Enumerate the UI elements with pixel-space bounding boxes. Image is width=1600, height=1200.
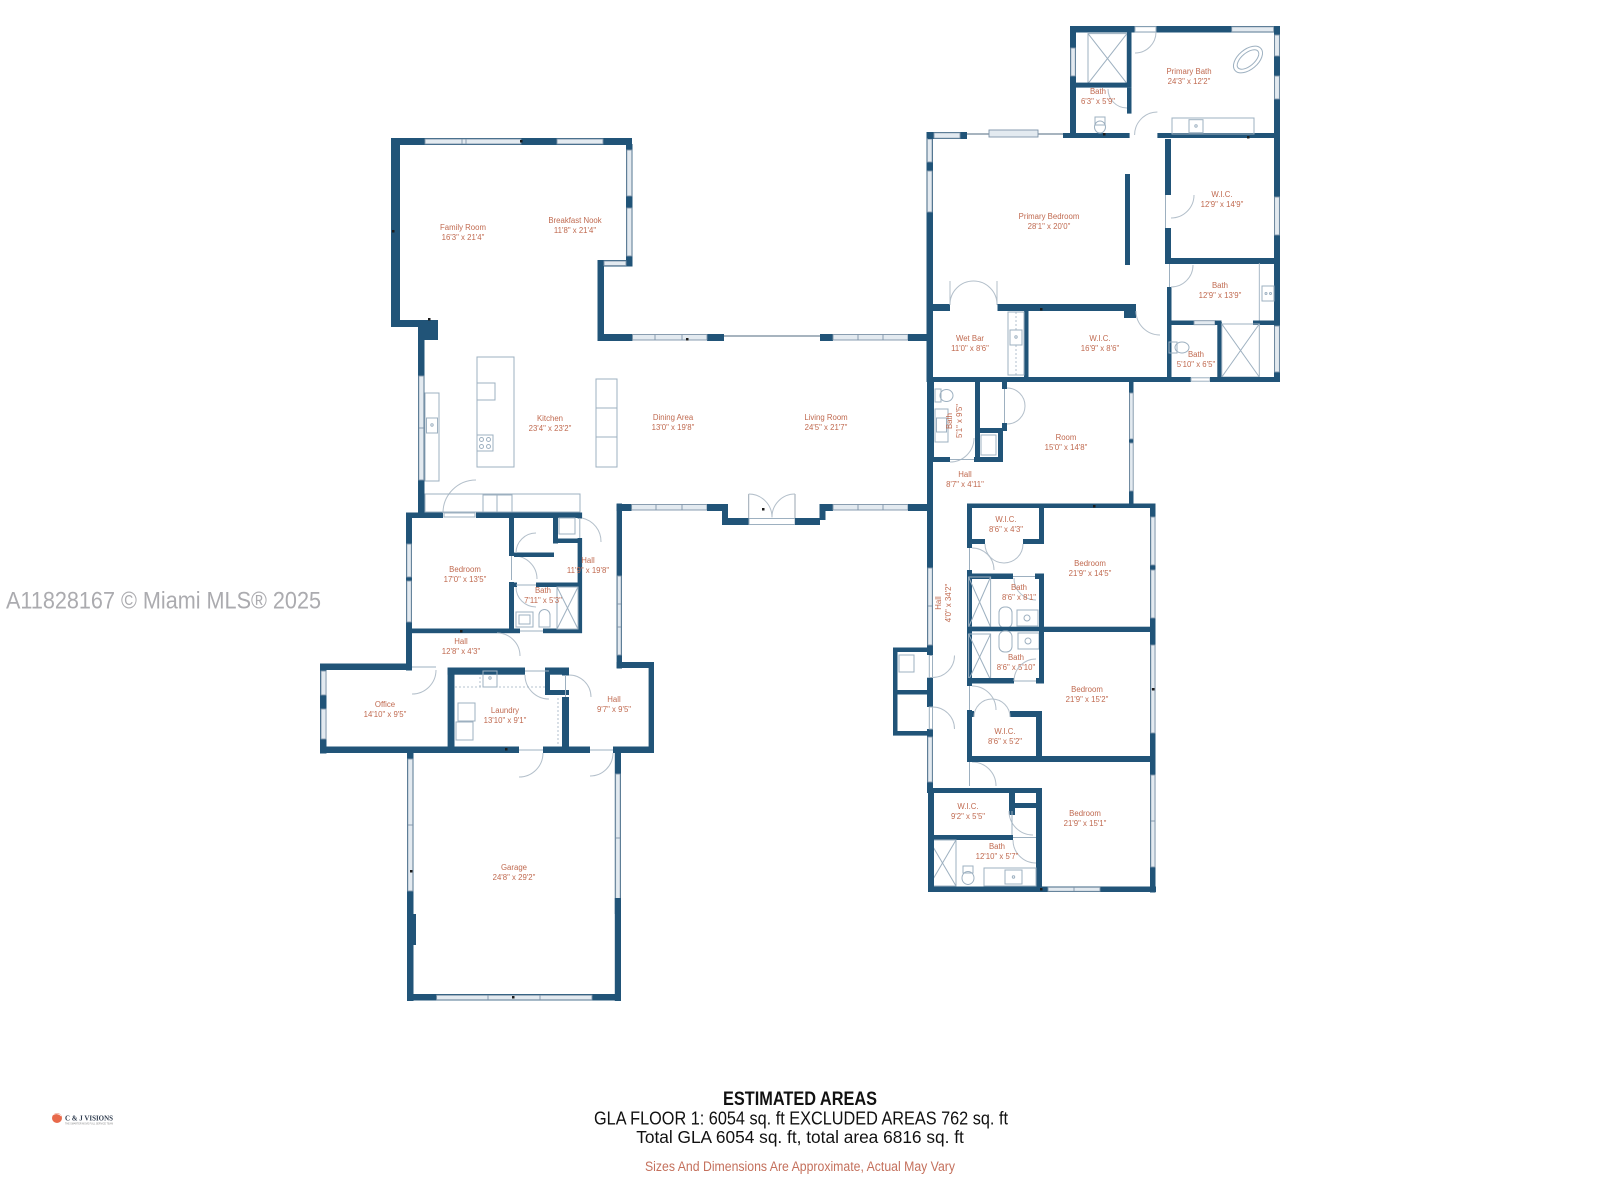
svg-text:21'9" x 15'2": 21'9" x 15'2" [1066,695,1109,704]
svg-text:GLA FLOOR 1: 6054 sq. ft EXCLU: GLA FLOOR 1: 6054 sq. ft EXCLUDED AREAS … [594,1108,1008,1129]
svg-text:Bath: Bath [989,842,1005,851]
svg-text:11'0" x 8'6": 11'0" x 8'6" [951,344,989,353]
svg-text:Bedroom: Bedroom [1074,559,1106,568]
svg-text:21'9" x 14'5": 21'9" x 14'5" [1069,569,1112,578]
svg-text:13'10" x 9'1": 13'10" x 9'1" [484,716,527,725]
svg-text:6'3" x 5'9": 6'3" x 5'9" [1081,97,1115,106]
svg-text:Hall: Hall [607,695,621,704]
svg-text:Dining Area: Dining Area [653,413,694,422]
svg-text:Room: Room [1056,433,1077,442]
svg-text:W.I.C.: W.I.C. [994,727,1015,736]
svg-text:Hall: Hall [454,637,468,646]
svg-text:11'8" x 21'4": 11'8" x 21'4" [554,226,596,235]
svg-text:8'6" x 8'1": 8'6" x 8'1" [1002,593,1036,602]
svg-text:Bath: Bath [535,586,551,595]
svg-text:Breakfast Nook: Breakfast Nook [548,216,601,225]
svg-text:7'11" x 5'3": 7'11" x 5'3" [524,596,562,605]
svg-text:13'0" x 19'8": 13'0" x 19'8" [652,423,695,432]
svg-text:Bath: Bath [1212,281,1228,290]
svg-text:16'3" x 21'4": 16'3" x 21'4" [442,233,485,242]
svg-text:14'10" x 9'5": 14'10" x 9'5" [364,710,407,719]
svg-text:9'2" x 5'5": 9'2" x 5'5" [951,812,985,821]
svg-text:Hall: Hall [581,556,595,565]
svg-text:Bath: Bath [1008,653,1024,662]
svg-text:THE SMARTER MOVE FULL SERVICE: THE SMARTER MOVE FULL SERVICE TEAM [65,1122,114,1126]
svg-text:8'7" x 4'11": 8'7" x 4'11" [946,480,984,489]
svg-text:Family Room: Family Room [440,223,486,232]
svg-text:Hall: Hall [958,470,972,479]
svg-text:Bedroom: Bedroom [449,565,481,574]
svg-text:24'3" x 12'2": 24'3" x 12'2" [1168,77,1211,86]
svg-text:9'7" x 9'5": 9'7" x 9'5" [597,705,631,714]
svg-text:24'8" x 29'2": 24'8" x 29'2" [493,873,536,882]
svg-text:Wet Bar: Wet Bar [956,334,984,343]
svg-text:15'0" x 14'8": 15'0" x 14'8" [1045,443,1088,452]
svg-text:21'9" x 15'1": 21'9" x 15'1" [1064,819,1107,828]
svg-text:12'9" x 13'9": 12'9" x 13'9" [1199,291,1242,300]
svg-text:W.I.C.: W.I.C. [1211,190,1232,199]
svg-text:Bedroom: Bedroom [1071,685,1103,694]
svg-text:Living Room: Living Room [804,413,847,422]
svg-text:W.I.C.: W.I.C. [957,802,978,811]
svg-text:Total GLA 6054 sq. ft, total a: Total GLA 6054 sq. ft, total area 6816 s… [636,1127,964,1147]
svg-text:Hall: Hall [934,596,943,610]
svg-text:24'5" x 21'7": 24'5" x 21'7" [805,423,848,432]
svg-text:Sizes And Dimensions Are Appro: Sizes And Dimensions Are Approximate, Ac… [645,1159,955,1174]
svg-text:Garage: Garage [501,863,527,872]
svg-text:Bath: Bath [1090,87,1106,96]
svg-text:Bath: Bath [1188,350,1204,359]
svg-text:Office: Office [375,700,395,709]
svg-text:8'6" x 5'2": 8'6" x 5'2" [988,737,1022,746]
svg-text:12'10" x 5'7": 12'10" x 5'7" [976,852,1019,861]
svg-text:Kitchen: Kitchen [537,414,563,423]
svg-text:4'0" x 34'2": 4'0" x 34'2" [944,584,953,623]
svg-text:5'1" x 9'5": 5'1" x 9'5" [955,404,964,438]
svg-text:23'4" x 23'2": 23'4" x 23'2" [529,424,572,433]
svg-text:16'9" x 8'6": 16'9" x 8'6" [1081,344,1120,353]
svg-text:17'0" x 13'5": 17'0" x 13'5" [444,575,487,584]
svg-text:12'9" x 14'9": 12'9" x 14'9" [1201,200,1244,209]
svg-text:12'8" x 4'3": 12'8" x 4'3" [442,647,481,656]
svg-text:Laundry: Laundry [491,706,519,715]
svg-text:W.I.C.: W.I.C. [995,515,1016,524]
svg-text:Bedroom: Bedroom [1069,809,1101,818]
svg-text:8'6" x 4'3": 8'6" x 4'3" [989,525,1023,534]
svg-text:Bath: Bath [1011,583,1027,592]
svg-text:Primary Bath: Primary Bath [1166,67,1211,76]
svg-text:Bath: Bath [945,413,954,429]
svg-text:5'10" x 6'5": 5'10" x 6'5" [1177,360,1216,369]
svg-text:28'1" x 20'0": 28'1" x 20'0" [1028,222,1071,231]
svg-text:11'9" x 19'8": 11'9" x 19'8" [567,566,609,575]
svg-text:Primary Bedroom: Primary Bedroom [1019,212,1080,221]
svg-text:W.I.C.: W.I.C. [1089,334,1110,343]
svg-text:A11828167 © Miami MLS® 2025: A11828167 © Miami MLS® 2025 [6,588,321,615]
